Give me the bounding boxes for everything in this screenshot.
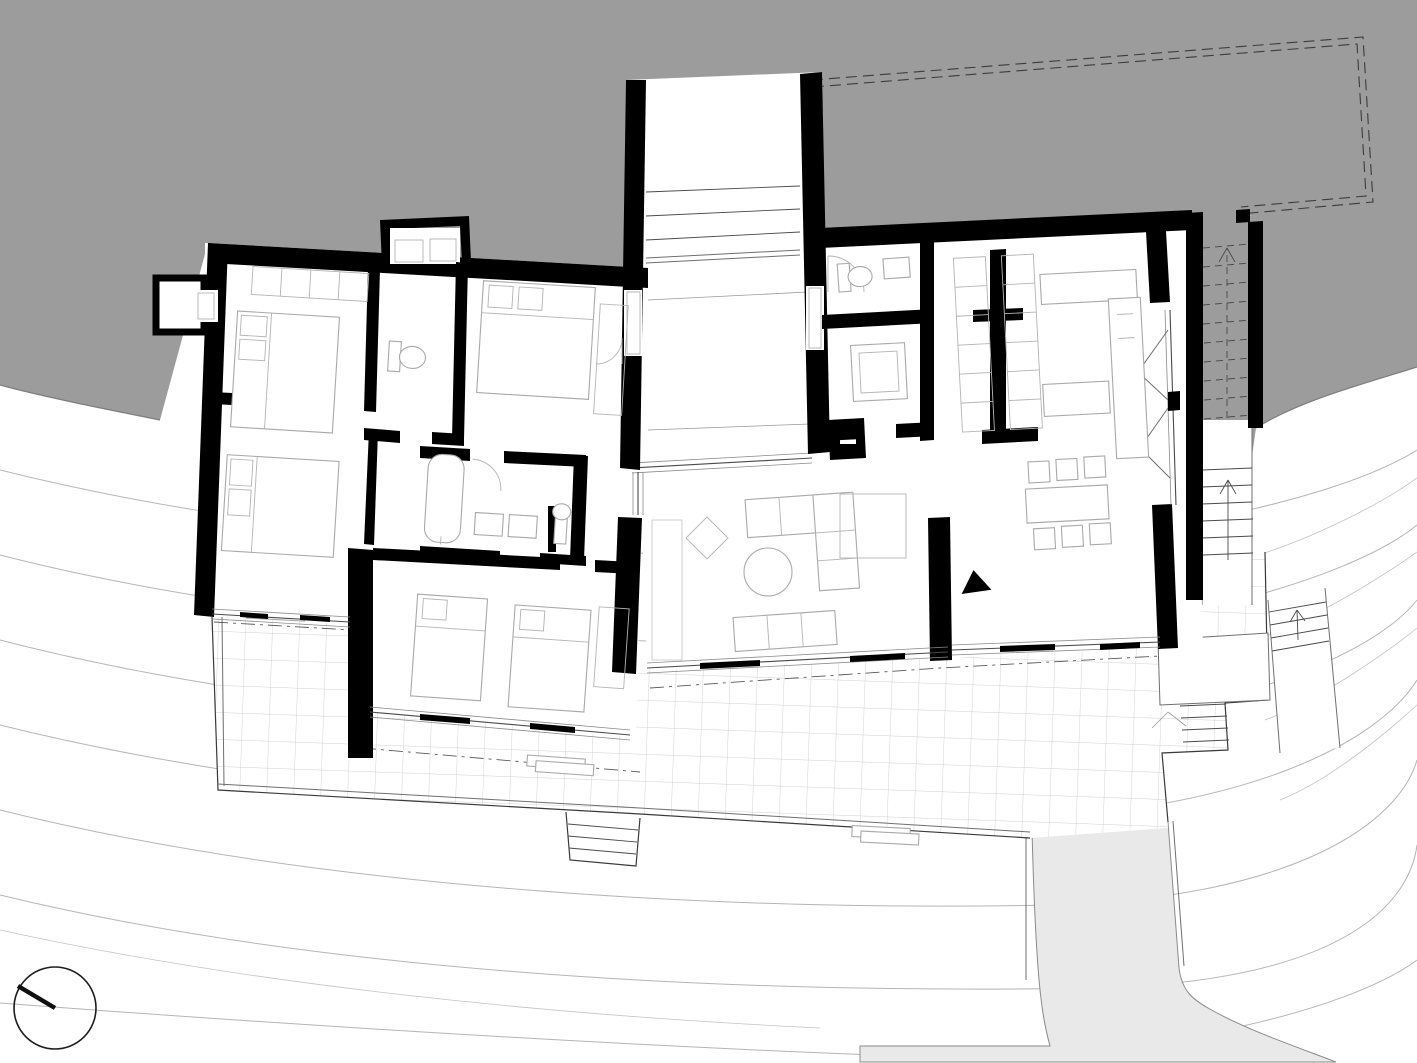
bed-sw bbox=[221, 455, 339, 558]
driveway bbox=[860, 821, 1336, 1062]
sun-lounger bbox=[852, 826, 920, 845]
sofa-straight bbox=[733, 610, 837, 651]
floor-plan-sheet bbox=[0, 0, 1417, 1063]
dining-set bbox=[1024, 456, 1112, 550]
east-garden-path bbox=[1268, 588, 1340, 753]
bed-nw bbox=[231, 311, 340, 433]
north-niche bbox=[380, 216, 471, 266]
coffee-table-round bbox=[744, 548, 792, 596]
floor-plan-drawing bbox=[0, 0, 1417, 1063]
shower-stall bbox=[851, 343, 908, 402]
terrace-south-steps bbox=[566, 812, 640, 866]
north-arrow bbox=[14, 967, 96, 1049]
